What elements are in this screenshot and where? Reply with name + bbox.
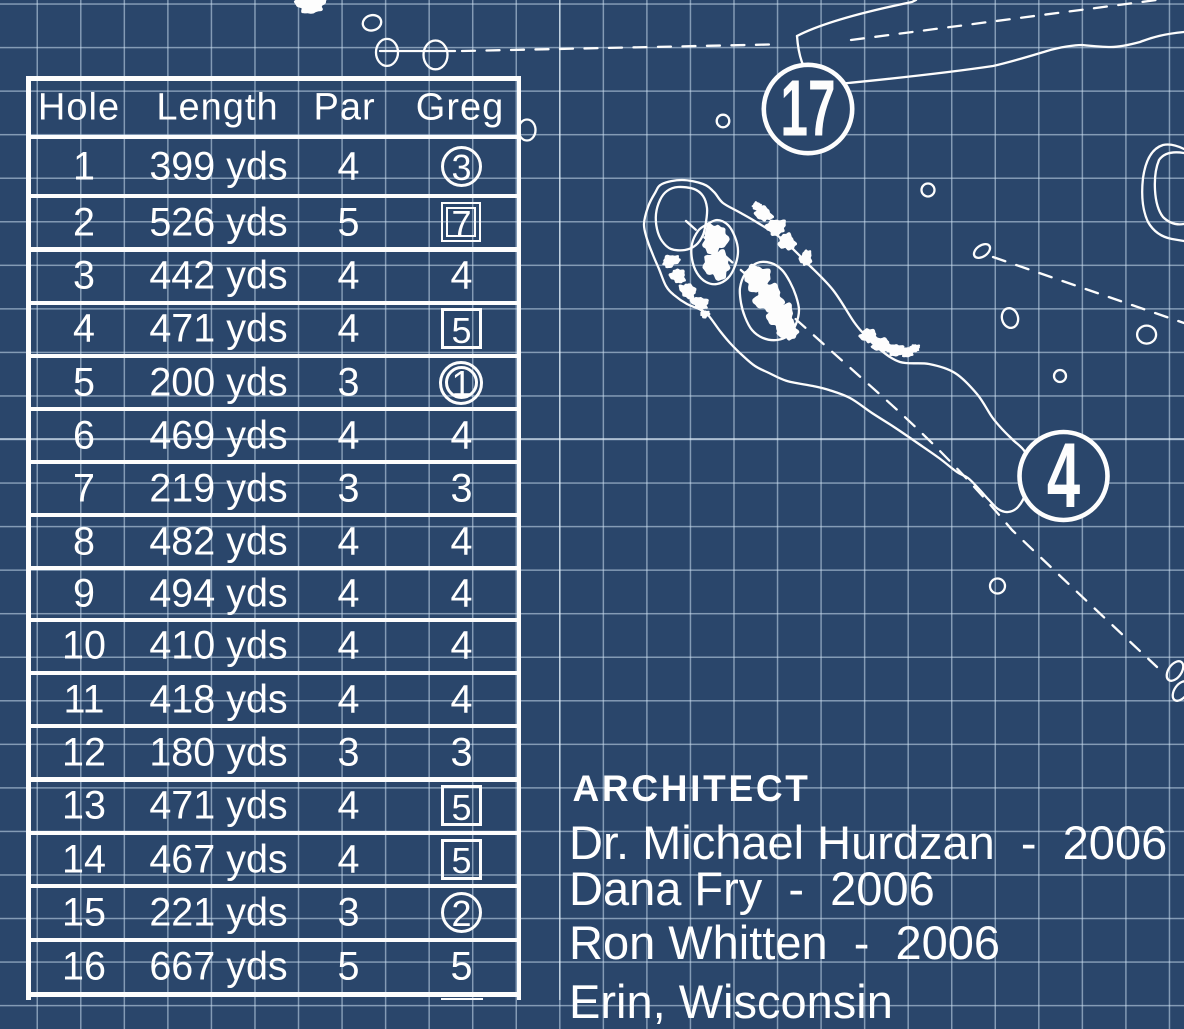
svg-text:17: 17 <box>780 65 835 154</box>
svg-text:4: 4 <box>1047 425 1080 527</box>
